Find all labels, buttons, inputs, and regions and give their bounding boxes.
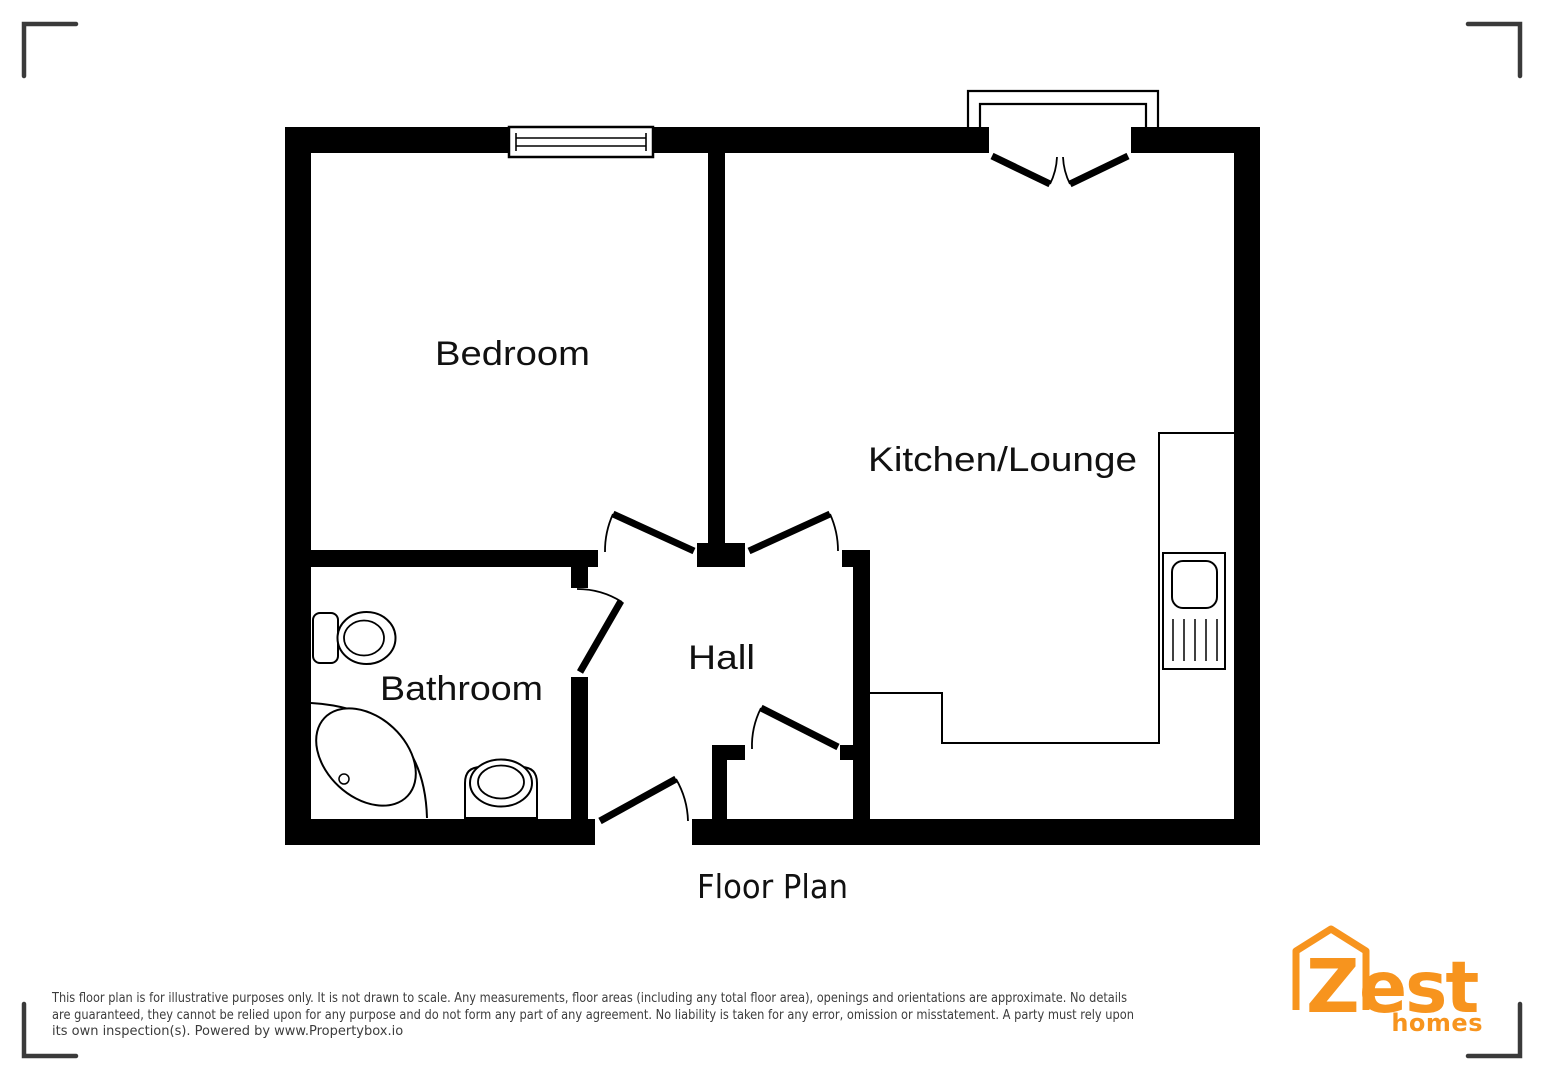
wall-closet-right-stub <box>840 745 853 760</box>
wall-top-middle <box>653 127 989 153</box>
basin-icon <box>465 760 537 819</box>
wall-bathroom-top <box>311 550 598 567</box>
wall-bathroom-right-upper-stub <box>571 567 588 588</box>
bathroom-label: Bathroom <box>380 670 543 708</box>
bedroom-label: Bedroom <box>435 335 590 373</box>
logo-text-homes: homes <box>1391 1009 1483 1037</box>
wall-bedroom-kitchen-divider-stub <box>697 543 745 567</box>
corner-bath-icon <box>297 689 435 825</box>
bathroom-door-arc <box>577 589 622 602</box>
kitchen-lounge-label: Kitchen/Lounge <box>868 441 1137 479</box>
disclaimer-line-3: its own inspection(s). Powered by www.Pr… <box>52 1024 403 1039</box>
wall-bottom-left <box>285 819 595 845</box>
corner-mark-top-right <box>1468 24 1520 76</box>
toilet-icon <box>313 612 396 664</box>
bedroom-door-arc <box>605 514 613 552</box>
floor-plan-image: Bedroom Kitchen/Lounge Hall Bathroom Flo… <box>0 0 1544 1080</box>
entrance-door-arc <box>676 779 688 821</box>
kitchen-door-leaf <box>749 514 830 551</box>
french-door-left-leaf <box>992 156 1050 184</box>
french-door-right-arc <box>1063 157 1070 184</box>
bathroom-door-leaf <box>580 601 621 672</box>
door-swing-arcs <box>577 157 1070 821</box>
wall-hall-kitchen-divider <box>853 550 870 819</box>
bedroom-door-leaf <box>613 514 694 551</box>
closet-door-arc <box>752 708 761 749</box>
entrance-door-leaf <box>600 779 676 821</box>
kitchen-sink-icon <box>1163 553 1225 669</box>
wall-bottom-right <box>692 819 1260 845</box>
page-title: Floor Plan <box>697 867 848 906</box>
french-door-left-arc <box>1050 157 1057 184</box>
logo-letter-z: Z <box>1306 944 1360 1030</box>
wall-bathroom-right-lower <box>571 677 588 819</box>
zest-homes-logo: Z est homes <box>1296 929 1483 1037</box>
kitchen-door-arc <box>830 514 838 551</box>
closet-door-leaf <box>761 708 838 747</box>
balcony-outline-icon <box>968 91 1158 128</box>
corner-mark-top-left <box>24 24 76 76</box>
walls <box>285 127 1260 845</box>
hall-label: Hall <box>688 639 755 677</box>
wall-left <box>285 127 311 845</box>
french-door-right-leaf <box>1070 156 1128 184</box>
window-frame <box>509 127 653 157</box>
disclaimer-line-2: are guaranteed, they cannot be relied up… <box>52 1008 1134 1023</box>
wall-right <box>1234 127 1260 845</box>
wall-closet-left <box>712 745 727 819</box>
wall-bedroom-kitchen-divider <box>708 153 725 543</box>
bedroom-window-icon <box>509 127 653 157</box>
wall-top-left-of-window <box>285 127 509 153</box>
wall-closet-left-nub <box>727 745 745 760</box>
disclaimer-line-1: This floor plan is for illustrative purp… <box>51 991 1127 1006</box>
disclaimer-text: This floor plan is for illustrative purp… <box>51 991 1134 1039</box>
